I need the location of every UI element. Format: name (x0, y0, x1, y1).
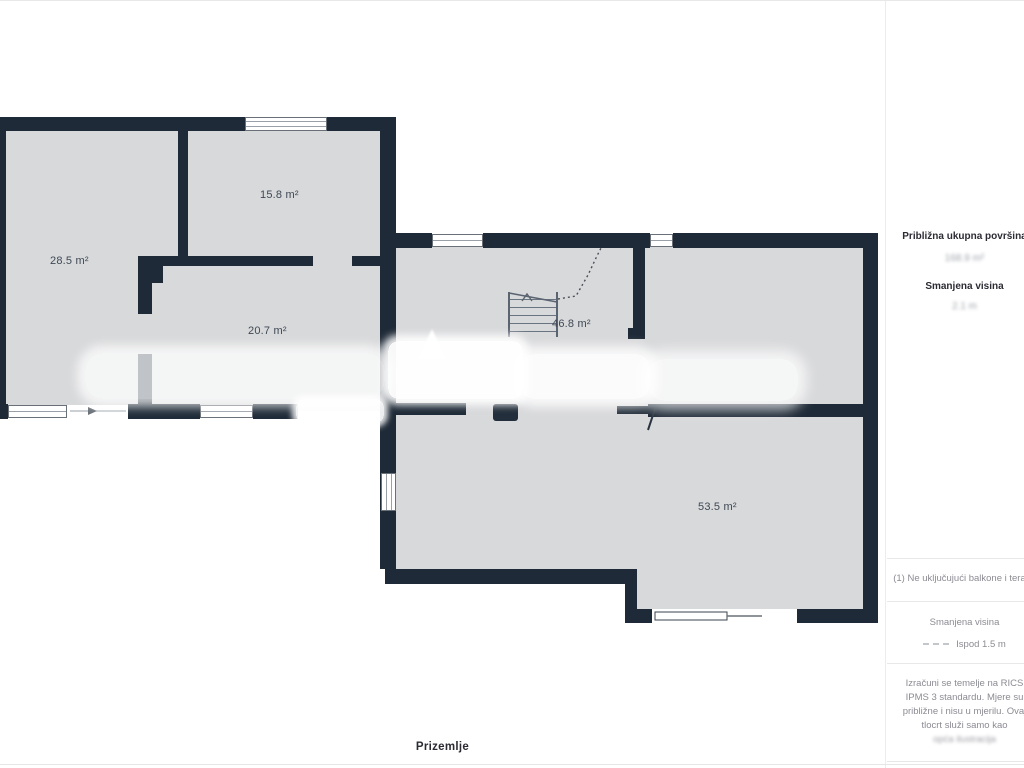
door-leaf (617, 406, 657, 414)
wall-segment (178, 131, 188, 261)
wall-segment (396, 403, 466, 415)
blur-patch (85, 353, 385, 399)
total-area-value: 168.9 m² (886, 253, 1024, 264)
wall-segment (863, 233, 878, 623)
divider (887, 761, 1024, 762)
wall-segment (673, 233, 878, 248)
blur-patch (648, 359, 798, 401)
wall-segment (128, 404, 200, 419)
reduced-height-value: 2.1 m (886, 301, 1024, 312)
legend-row: Ispod 1.5 m (886, 639, 1024, 650)
divider (0, 764, 1024, 765)
divider (887, 601, 1024, 602)
room-area-label: 46.8 m² (552, 318, 591, 330)
wall-segment (0, 404, 8, 419)
wall-segment (637, 609, 652, 623)
blur-patch (388, 341, 523, 399)
door-leaf (493, 404, 518, 421)
blur-artifact-triangle (418, 329, 446, 359)
wall-segment (483, 233, 650, 248)
window (432, 234, 483, 247)
divider (887, 558, 1024, 559)
dashed-line-icon (923, 643, 949, 645)
wall-segment (0, 117, 392, 131)
wall-segment (797, 609, 878, 623)
legend-title: Smanjena visina (886, 617, 1024, 628)
window (8, 405, 67, 418)
wall-segment (392, 233, 432, 248)
disclaimer-blurred-line: opća ilustracija (933, 734, 996, 745)
room-area-label: 20.7 m² (248, 325, 287, 337)
total-area-heading: Približna ukupna površina (886, 231, 1024, 242)
blur-patch (296, 399, 384, 423)
wall-segment (625, 571, 637, 623)
room-area-label: 28.5 m² (50, 255, 89, 267)
window (650, 234, 673, 247)
room-area-label: 15.8 m² (260, 189, 299, 201)
floorplan-viewer: 28.5 m² 15.8 m² 20.7 m² 46.8 m² 53.5 m² … (0, 0, 1024, 768)
wall-segment (138, 266, 152, 314)
window (200, 405, 253, 418)
wall-segment (253, 404, 298, 419)
room-area-label: 53.5 m² (698, 501, 737, 513)
reduced-height-heading: Smanjena visina (886, 281, 1024, 292)
floor-title: Prizemlje (0, 741, 885, 753)
legend-item-label: Ispod 1.5 m (956, 639, 1006, 650)
disclaimer-main: Izračuni se temelje na RICS IPMS 3 stand… (903, 678, 1024, 731)
wall-segment (633, 248, 645, 331)
footnote: (1) Ne uključujući balkone i terase (886, 573, 1024, 584)
blur-patch (520, 354, 650, 399)
wall-segment (0, 117, 6, 419)
sliding-door (67, 405, 128, 418)
wall-segment (138, 256, 313, 266)
floor-bottom-right-extension (637, 481, 872, 619)
window (381, 473, 396, 511)
wall-segment (628, 328, 645, 339)
floorplan-canvas: 28.5 m² 15.8 m² 20.7 m² 46.8 m² 53.5 m² … (0, 1, 885, 768)
disclaimer-text: Izračuni se temelje na RICS IPMS 3 stand… (886, 677, 1024, 747)
sliding-door (652, 609, 797, 622)
window (245, 117, 327, 131)
staircase (508, 292, 558, 337)
divider (887, 663, 1024, 664)
info-sidebar: Približna ukupna površina 168.9 m² Smanj… (885, 1, 1024, 768)
wall-segment (352, 256, 382, 266)
wall-segment (648, 404, 863, 417)
wall-segment (385, 569, 637, 584)
